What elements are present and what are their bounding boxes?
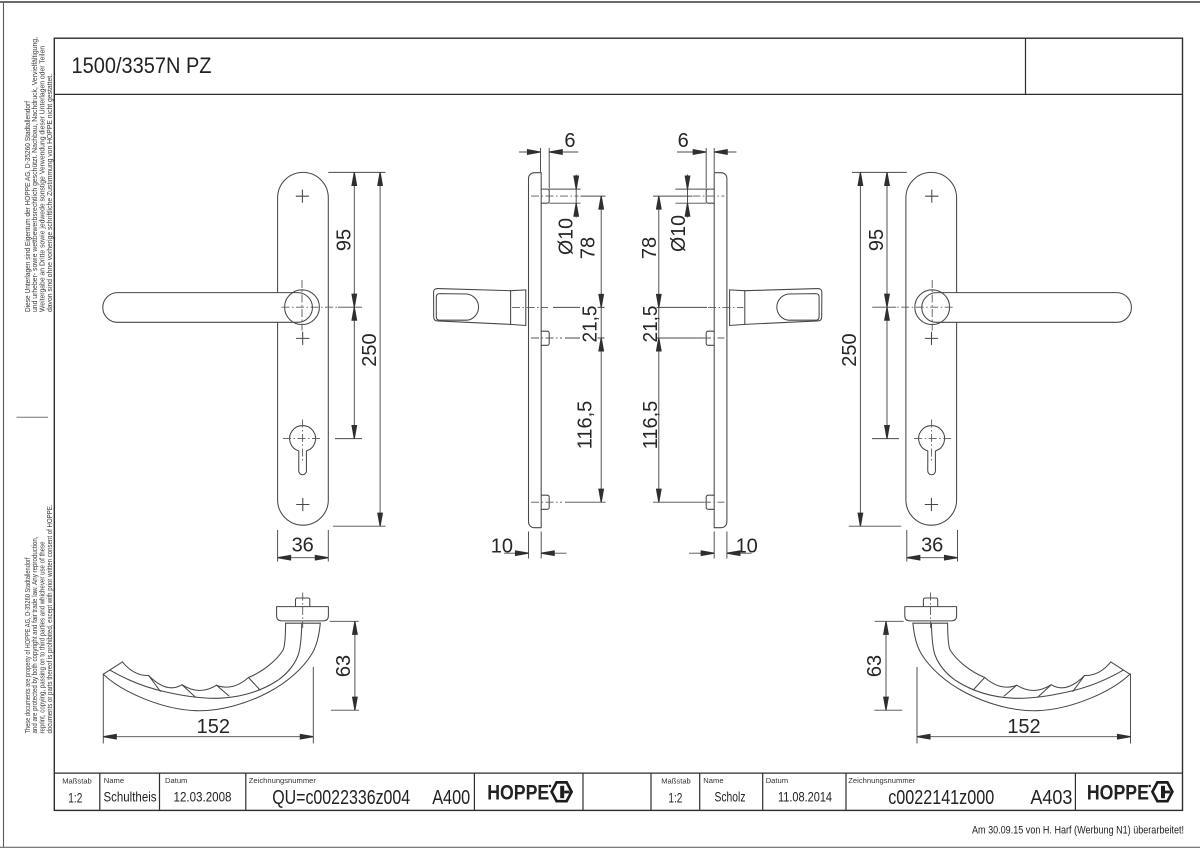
svg-text:Scholz: Scholz xyxy=(715,789,746,805)
svg-text:78: 78 xyxy=(639,237,661,259)
svg-text:Datum: Datum xyxy=(766,776,788,785)
svg-text:63: 63 xyxy=(333,655,355,677)
svg-text:21,5: 21,5 xyxy=(580,306,602,343)
svg-text:1:2: 1:2 xyxy=(68,790,82,806)
svg-text:36: 36 xyxy=(921,535,943,557)
svg-text:davon sind ohne vorherige schr: davon sind ohne vorherige schriftliche Z… xyxy=(47,74,54,312)
svg-text:250: 250 xyxy=(839,333,861,366)
svg-text:1500/3357N PZ: 1500/3357N PZ xyxy=(72,53,212,78)
svg-text:Diese Unterlagen sind Eigentum: Diese Unterlagen sind Eigentum der HOPPE… xyxy=(25,101,32,312)
svg-text:152: 152 xyxy=(1007,716,1040,738)
svg-text:152: 152 xyxy=(197,716,230,738)
svg-text:HOPPE: HOPPE xyxy=(487,781,549,805)
svg-text:Datum: Datum xyxy=(165,776,187,785)
svg-text:Schultheis: Schultheis xyxy=(104,789,157,805)
svg-text:10: 10 xyxy=(736,536,758,558)
svg-text:Ø10: Ø10 xyxy=(556,218,578,255)
svg-text:11.08.2014: 11.08.2014 xyxy=(778,789,832,805)
svg-text:63: 63 xyxy=(864,655,886,677)
svg-text:6: 6 xyxy=(564,130,575,152)
svg-text:and are protected by both copy: and are protected by both copyright and … xyxy=(32,536,39,733)
svg-text:6: 6 xyxy=(678,130,689,152)
svg-text:QU=c0022336z004: QU=c0022336z004 xyxy=(272,787,410,809)
svg-text:95: 95 xyxy=(866,229,888,251)
svg-text:250: 250 xyxy=(359,333,381,366)
svg-text:Name: Name xyxy=(703,776,723,785)
svg-text:documents or parts thereof is: documents or parts thereof is prohibited… xyxy=(47,504,54,733)
svg-text:21,5: 21,5 xyxy=(640,306,662,343)
svg-text:36: 36 xyxy=(292,535,314,557)
svg-text:12.03.2008: 12.03.2008 xyxy=(174,789,232,805)
svg-text:78: 78 xyxy=(578,237,600,259)
svg-text:Zeichnungsnummer: Zeichnungsnummer xyxy=(848,776,916,785)
svg-text:Weitergabe an Dritte sowie jed: Weitergabe an Dritte sowie jedwede sonst… xyxy=(40,46,47,312)
svg-text:Maßstab: Maßstab xyxy=(661,776,691,785)
svg-text:Am 30.09.15 von H. Harf (Werbu: Am 30.09.15 von H. Harf (Werbung N1) übe… xyxy=(972,825,1184,837)
svg-text:HOPPE: HOPPE xyxy=(1087,781,1149,805)
svg-text:Zeichnungsnummer: Zeichnungsnummer xyxy=(249,776,317,785)
svg-text:116,5: 116,5 xyxy=(640,401,662,450)
svg-text:reprint, copying, passing on t: reprint, copying, passing on to third pa… xyxy=(40,541,47,733)
svg-text:These documents are property o: These documents are property of HOPPE AG… xyxy=(25,557,32,733)
svg-text:A400: A400 xyxy=(432,787,470,809)
svg-text:95: 95 xyxy=(334,229,356,251)
svg-text:Maßstab: Maßstab xyxy=(62,776,92,785)
svg-text:Name: Name xyxy=(104,776,124,785)
svg-text:A403: A403 xyxy=(1030,787,1072,809)
svg-text:c0022141z000: c0022141z000 xyxy=(888,787,994,809)
svg-text:10: 10 xyxy=(491,536,513,558)
svg-text:Ø10: Ø10 xyxy=(668,215,690,252)
svg-text:116,5: 116,5 xyxy=(575,401,597,450)
svg-text:und urheber- sowie wettbewerbs: und urheber- sowie wettbewerbsrechtlich … xyxy=(32,37,39,312)
svg-text:1:2: 1:2 xyxy=(668,790,682,806)
